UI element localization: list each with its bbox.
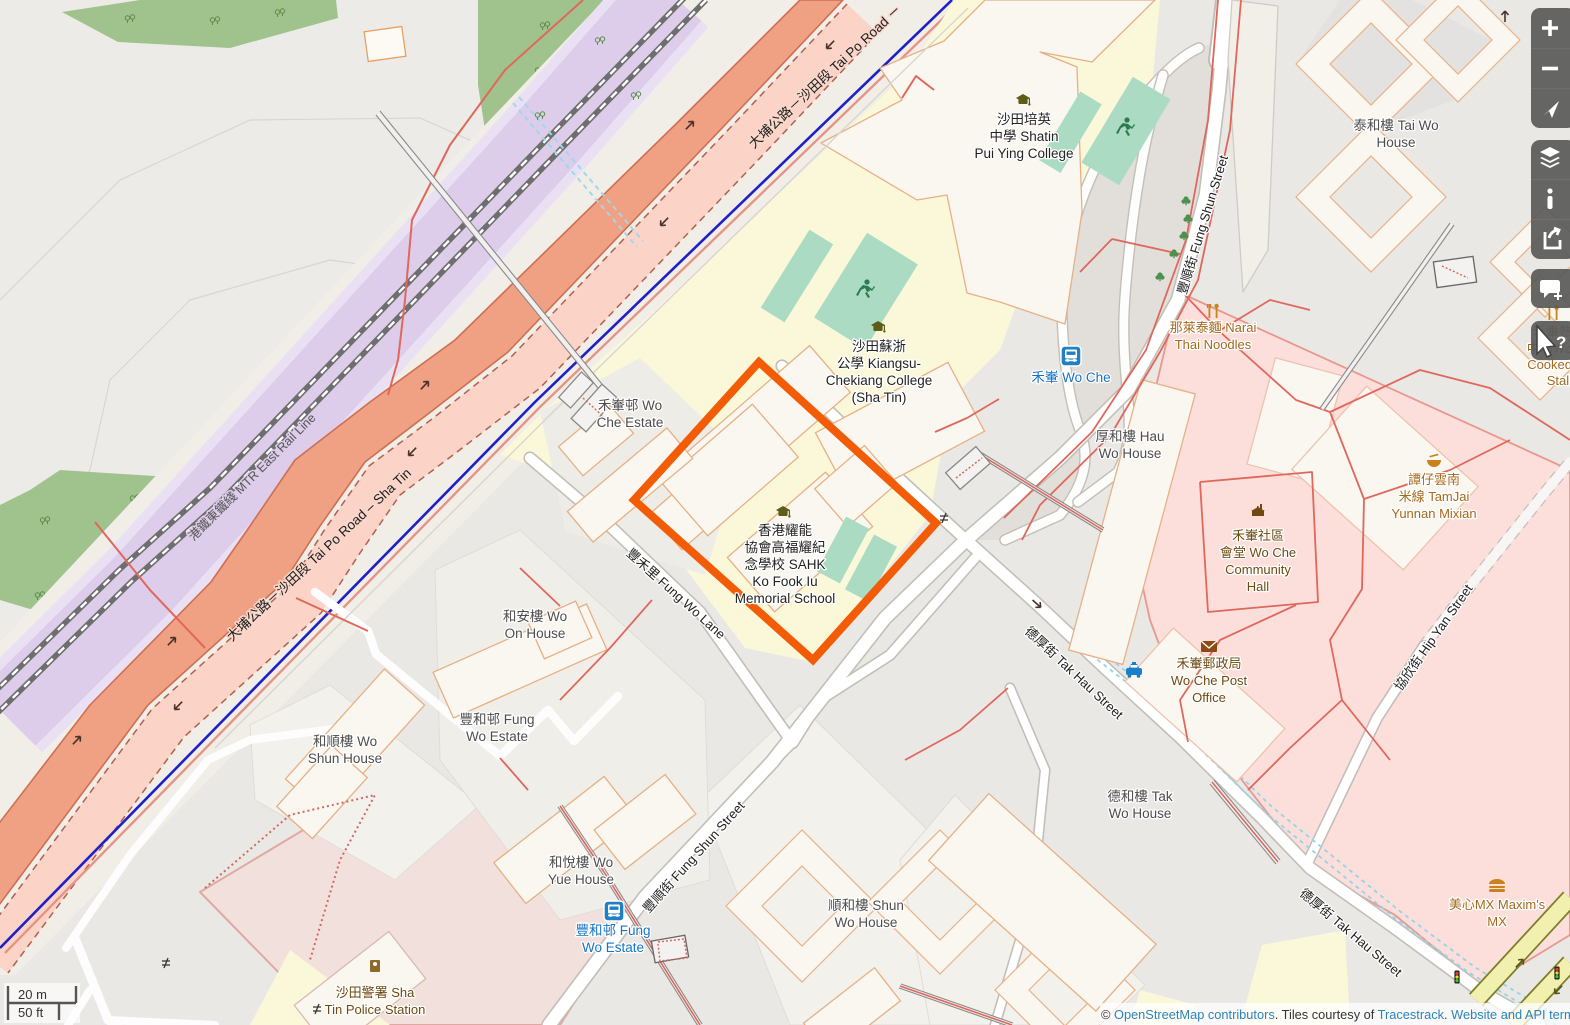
svg-text:米線 TamJai: 米線 TamJai	[1399, 489, 1470, 504]
svg-text:Memorial School: Memorial School	[735, 591, 836, 606]
svg-text:Wo House: Wo House	[1109, 806, 1172, 821]
svg-text:協會高福耀紀: 協會高福耀紀	[745, 539, 826, 555]
svg-text:Yunnan Mixian: Yunnan Mixian	[1391, 506, 1476, 521]
svg-text:豐和邨 Fung: 豐和邨 Fung	[575, 923, 650, 938]
svg-text:20 m: 20 m	[18, 987, 47, 1002]
svg-text:沙田蘇浙: 沙田蘇浙	[852, 339, 906, 354]
svg-text:譚仔雲南: 譚仔雲南	[1408, 472, 1460, 487]
svg-text:和安樓 Wo: 和安樓 Wo	[503, 609, 567, 624]
svg-text:Office: Office	[1192, 690, 1226, 705]
svg-text:Thai Noodles: Thai Noodles	[1175, 337, 1252, 352]
svg-text:念學校 SAHK: 念學校 SAHK	[744, 556, 825, 572]
svg-text:中學 Shatin: 中學 Shatin	[989, 129, 1058, 144]
svg-text:MX: MX	[1487, 914, 1507, 929]
svg-text:沙田警署 Sha: 沙田警署 Sha	[336, 985, 416, 1000]
svg-text:會堂 Wo Che: 會堂 Wo Che	[1220, 545, 1296, 560]
svg-text:Hall: Hall	[1247, 579, 1270, 594]
svg-text:沙田培英: 沙田培英	[997, 112, 1051, 127]
svg-text:?: ?	[1556, 333, 1566, 352]
svg-text:泰和樓 Tai Wo: 泰和樓 Tai Wo	[1353, 118, 1438, 133]
svg-text:和順樓 Wo: 和順樓 Wo	[313, 734, 377, 749]
svg-text:© OpenStreetMap contributors.: © OpenStreetMap contributors. Tiles cour…	[1101, 1007, 1570, 1022]
svg-text:Stall: Stall	[1547, 373, 1570, 388]
svg-text:那萊泰麵 Narai: 那萊泰麵 Narai	[1170, 320, 1257, 335]
svg-text:香港耀能: 香港耀能	[758, 523, 812, 538]
svg-text:Wo House: Wo House	[835, 915, 898, 930]
svg-text:Wo Che Post: Wo Che Post	[1171, 673, 1248, 688]
svg-text:美心MX Maxim's: 美心MX Maxim's	[1449, 897, 1546, 912]
svg-text:(Sha Tin): (Sha Tin)	[852, 390, 907, 405]
svg-text:House: House	[1376, 135, 1415, 150]
svg-text:Community: Community	[1225, 562, 1291, 577]
svg-text:Pui Ying College: Pui Ying College	[974, 146, 1073, 161]
svg-text:公學 Kiangsu-: 公學 Kiangsu-	[837, 356, 921, 371]
svg-text:禾輋社區: 禾輋社區	[1232, 528, 1284, 543]
svg-text:Yue House: Yue House	[548, 872, 614, 887]
svg-text:Shun House: Shun House	[308, 751, 382, 766]
svg-text:禾輋郵政局: 禾輋郵政局	[1176, 656, 1241, 671]
svg-text:Ko Fook Iu: Ko Fook Iu	[752, 574, 817, 589]
svg-text:和悅樓 Wo: 和悅樓 Wo	[549, 855, 613, 870]
svg-text:厚和樓 Hau: 厚和樓 Hau	[1095, 429, 1164, 444]
svg-text:禾輋 Wo Che: 禾輋 Wo Che	[1031, 370, 1110, 385]
svg-text:Tin Police Station: Tin Police Station	[325, 1002, 426, 1017]
svg-text:50 ft: 50 ft	[18, 1005, 44, 1020]
svg-text:德和樓 Tak: 德和樓 Tak	[1107, 789, 1173, 804]
svg-text:Wo House: Wo House	[1099, 446, 1162, 461]
svg-text:Chekiang College: Chekiang College	[826, 373, 933, 388]
svg-text:Che Estate: Che Estate	[597, 415, 664, 430]
svg-text:豐和邨 Fung: 豐和邨 Fung	[459, 712, 534, 727]
svg-text:順和樓 Shun: 順和樓 Shun	[828, 898, 904, 913]
svg-text:On House: On House	[505, 626, 566, 641]
svg-text:Wo Estate: Wo Estate	[466, 729, 528, 744]
svg-text:Wo Estate: Wo Estate	[582, 940, 644, 955]
svg-text:禾輋邨 Wo: 禾輋邨 Wo	[598, 398, 662, 413]
